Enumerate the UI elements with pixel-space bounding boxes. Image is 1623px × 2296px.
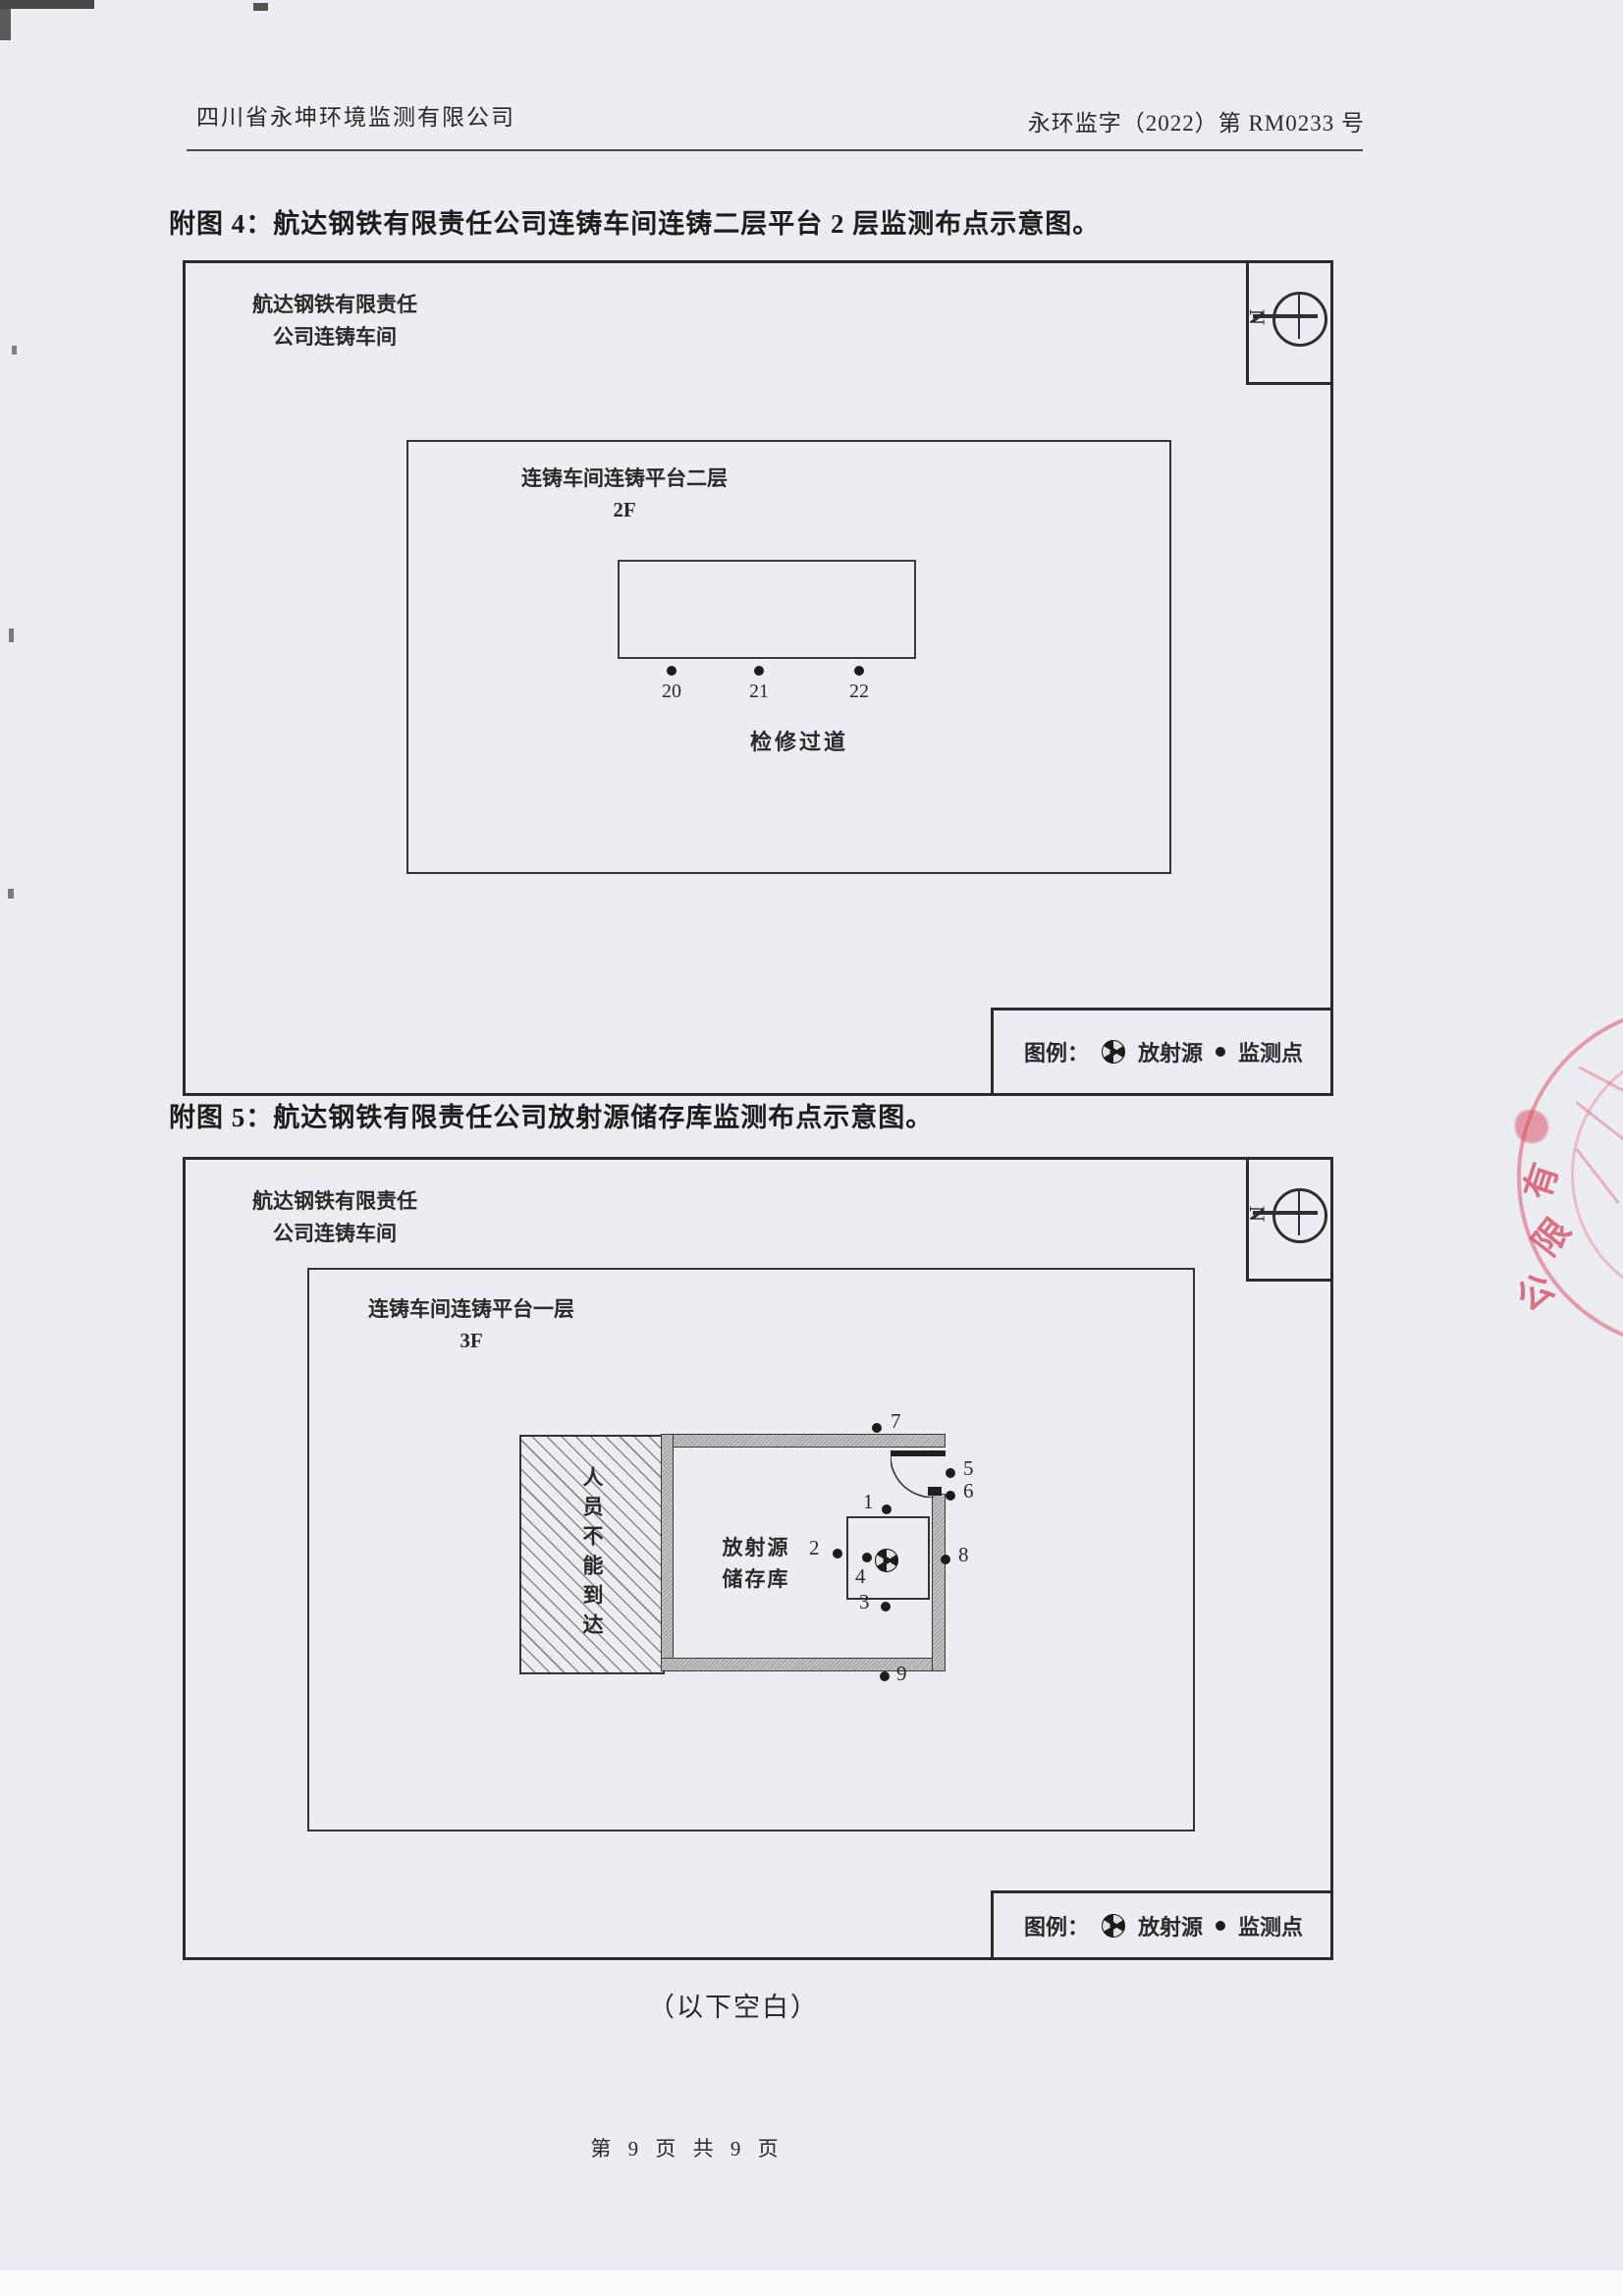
legend-caption: 图例： <box>1024 1910 1089 1941</box>
monitor-dot-icon <box>754 666 764 676</box>
figure5-diagram: 航达钢铁有限责任 公司连铸车间 N 连铸车间连铸平台一层 3F 人员不能到达 放… <box>183 1157 1333 1960</box>
monitor-point-label: 3 <box>859 1590 870 1614</box>
north-label: N <box>1244 1206 1270 1222</box>
header-company: 四川省永坤环境监测有限公司 <box>196 98 515 132</box>
figure5-title: 附图 5：航达钢铁有限责任公司放射源储存库监测布点示意图。 <box>169 1096 933 1134</box>
figure5-area-box: 连铸车间连铸平台一层 3F 人员不能到达 放射源 储存库 1 2 3 4 <box>307 1268 1195 1831</box>
legend-caption: 图例： <box>1024 1036 1089 1067</box>
monitor-dot-icon <box>881 1602 891 1612</box>
restricted-area: 人员不能到达 <box>519 1435 665 1674</box>
monitor-dot-icon <box>946 1491 955 1501</box>
monitor-dot-icon <box>667 666 676 676</box>
north-arrow-box: N <box>1246 262 1331 385</box>
restricted-label: 人员不能到达 <box>577 1466 607 1643</box>
area-line1: 连铸车间连铸平台二层 <box>521 466 728 490</box>
figure5-corp-label: 航达钢铁有限责任 公司连铸车间 <box>219 1185 451 1249</box>
scan-artifact <box>0 0 94 9</box>
figure5-legend: 图例： 放射源 监测点 <box>991 1890 1333 1957</box>
scan-artifact <box>8 889 14 899</box>
north-label: N <box>1244 309 1270 325</box>
figure4-equipment-rect <box>618 560 916 659</box>
compass-icon <box>1272 1188 1327 1243</box>
figure4-title: 附图 4：航达钢铁有限责任公司连铸车间连铸二层平台 2 层监测布点示意图。 <box>169 202 1100 241</box>
page-number: 第 9 页 共 9 页 <box>0 2133 1375 2162</box>
monitor-point-label: 6 <box>963 1479 974 1503</box>
legend-monitor-label: 监测点 <box>1238 1036 1303 1067</box>
monitor-point-20: 20 <box>650 666 693 703</box>
legend-monitor-label: 监测点 <box>1238 1910 1303 1941</box>
blank-below-note: （以下空白） <box>648 1986 819 2024</box>
walkway-label: 检修过道 <box>716 725 883 756</box>
figure4-legend: 图例： 放射源 监测点 <box>991 1008 1333 1093</box>
figure5-area-label: 连铸车间连铸平台一层 3F <box>324 1294 619 1356</box>
monitor-point-label: 9 <box>896 1662 907 1686</box>
scan-artifact <box>253 3 268 11</box>
company-seal-smudge <box>1515 1110 1548 1143</box>
storage-wall-top <box>661 1434 946 1448</box>
header-doc-number: 永环监字（2022）第 RM0233 号 <box>933 104 1365 137</box>
storage-wall-right <box>932 1494 946 1671</box>
monitor-point-label: 21 <box>737 681 781 703</box>
compass-icon <box>1272 292 1327 347</box>
scan-artifact <box>12 346 17 355</box>
monitor-point-label: 2 <box>809 1536 820 1560</box>
monitor-point-label: 4 <box>855 1564 866 1589</box>
storage-wall-left <box>661 1434 674 1671</box>
scan-artifact <box>0 9 11 40</box>
door-swing-arc <box>891 1456 934 1498</box>
monitor-dot-icon <box>833 1549 842 1558</box>
monitor-dot-icon <box>1216 1921 1225 1931</box>
storage-line2: 储存库 <box>723 1567 790 1591</box>
monitor-dot-icon <box>862 1553 872 1562</box>
monitor-dot-icon <box>941 1555 950 1564</box>
legend-source-label: 放射源 <box>1138 1910 1203 1941</box>
header-divider <box>187 149 1363 151</box>
monitor-dot-icon <box>872 1423 882 1433</box>
figure4-area-label: 连铸车间连铸平台二层 2F <box>462 464 786 525</box>
radiation-source-icon <box>1102 1914 1125 1938</box>
compass-axis <box>1298 1190 1300 1235</box>
radiation-source-icon <box>875 1549 898 1572</box>
compass-axis <box>1298 294 1300 339</box>
scan-artifact <box>9 629 14 642</box>
north-arrow-box: N <box>1246 1159 1331 1282</box>
monitor-point-21: 21 <box>737 666 781 703</box>
monitor-point-label: 8 <box>958 1543 969 1567</box>
figure4-diagram: 航达钢铁有限责任 公司连铸车间 N 连铸车间连铸平台二层 2F 20 21 22… <box>183 260 1333 1096</box>
monitor-dot-icon <box>854 666 864 676</box>
figure4-corp-label: 航达钢铁有限责任 公司连铸车间 <box>219 289 451 353</box>
monitor-point-22: 22 <box>838 666 881 703</box>
area-line1: 连铸车间连铸平台一层 <box>368 1297 574 1321</box>
corp-line2: 公司连铸车间 <box>273 1222 397 1245</box>
corp-line1: 航达钢铁有限责任 <box>252 1189 417 1213</box>
monitor-point-label: 7 <box>891 1409 901 1434</box>
figure4-area-box: 连铸车间连铸平台二层 2F 20 21 22 检修过道 <box>406 440 1171 874</box>
storage-room-label: 放射源 储存库 <box>692 1533 820 1595</box>
area-line2: 2F <box>613 498 635 521</box>
monitor-dot-icon <box>882 1504 892 1514</box>
scan-edge <box>0 2270 1623 2296</box>
monitor-point-label: 1 <box>863 1490 874 1514</box>
radiation-source-icon <box>1102 1040 1125 1064</box>
legend-source-label: 放射源 <box>1138 1036 1203 1067</box>
monitor-point-label: 22 <box>838 681 881 703</box>
corp-line2: 公司连铸车间 <box>273 325 397 349</box>
storage-line1: 放射源 <box>723 1536 790 1559</box>
area-line2: 3F <box>460 1329 482 1352</box>
monitor-point-label: 5 <box>963 1456 974 1481</box>
monitor-dot-icon <box>880 1671 890 1681</box>
monitor-dot-icon <box>946 1468 955 1478</box>
monitor-point-label: 20 <box>650 681 693 703</box>
monitor-dot-icon <box>1216 1047 1225 1057</box>
corp-line1: 航达钢铁有限责任 <box>252 293 417 316</box>
